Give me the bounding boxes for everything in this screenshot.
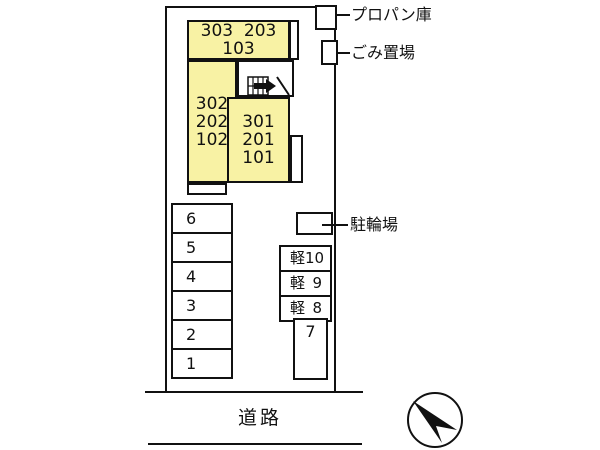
kei-prefix: 軽: [290, 251, 305, 266]
bicycle-label: 駐輪場: [350, 216, 398, 234]
site-plan: 道路 303 203 103 302 202 102 301 201 101: [0, 0, 600, 450]
road-line-top: [145, 391, 363, 393]
propane-storage-box: [315, 5, 337, 30]
parking-space-6: 6: [171, 203, 233, 234]
unit-row: 103: [222, 40, 254, 58]
unit-numbers-top: 303 203 103: [189, 22, 288, 58]
parking-space-1: 1: [171, 348, 233, 379]
parking-space-2: 2: [171, 319, 233, 350]
parking-space-number: 5: [186, 240, 196, 256]
garbage-label: ごみ置場: [351, 44, 415, 62]
parking-space-number: 3: [186, 298, 196, 314]
propane-label: プロパン庫: [351, 6, 432, 24]
parking-space-5: 5: [171, 232, 233, 263]
north-arrow-icon: [404, 390, 468, 450]
unit-row: 101: [242, 149, 274, 167]
unit-row: 301: [242, 113, 274, 131]
unit-numbers-right: 301 201 101: [229, 99, 288, 181]
parking-space-number: 2: [186, 327, 196, 343]
kei-number: 8: [312, 301, 322, 316]
parking-space-7: 7: [293, 318, 328, 380]
road-line-bottom: [148, 443, 362, 445]
kei-number: 9: [312, 276, 322, 291]
parking-space-4: 4: [171, 261, 233, 292]
kei-prefix: 軽: [290, 301, 305, 316]
road-label: 道路: [180, 403, 340, 430]
bicycle-leader-line: [322, 224, 348, 226]
unit-row: 102: [196, 131, 228, 149]
building-block-top: 303 203 103: [187, 20, 290, 60]
building-top-right-bay: [289, 20, 299, 60]
unit-row: 201: [242, 131, 274, 149]
propane-leader-line: [337, 14, 350, 16]
parking-space-kei-10: 軽10: [279, 245, 332, 272]
kei-prefix: 軽: [290, 276, 305, 291]
parking-space-number: 1: [186, 356, 196, 372]
unit-row: 303 203: [201, 22, 277, 40]
unit-row: 202: [196, 113, 228, 131]
stairs-icon: [246, 74, 294, 98]
parking-space-number: 4: [186, 269, 196, 285]
garbage-leader-line: [338, 52, 350, 54]
parking-space-3: 3: [171, 290, 233, 321]
building-right-bay: [290, 135, 303, 183]
building-block-right: 301 201 101: [227, 97, 290, 183]
kei-number: 10: [305, 251, 324, 266]
garbage-area-box: [321, 40, 338, 65]
parking-space-number: 6: [186, 211, 196, 227]
parking-space-kei-9: 軽9: [279, 270, 332, 297]
building-bottom-step: [187, 183, 227, 195]
parking-space-number: 7: [305, 324, 315, 340]
unit-row: 302: [196, 95, 228, 113]
